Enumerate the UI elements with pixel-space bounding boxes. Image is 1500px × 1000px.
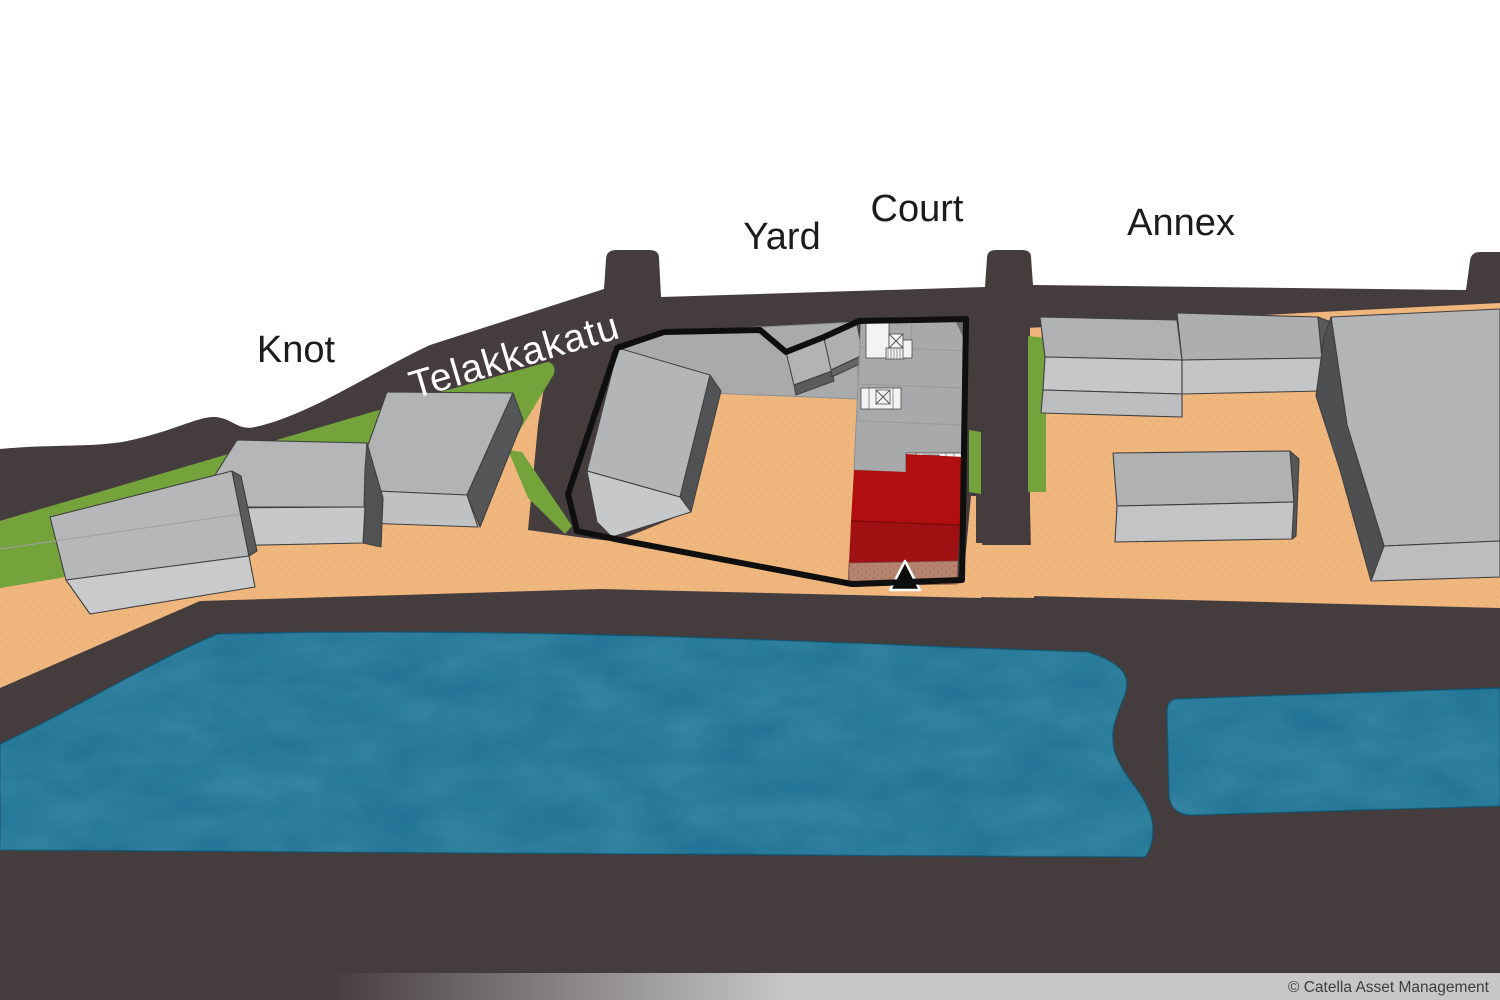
alley-road xyxy=(976,324,1030,543)
building-lower-tier xyxy=(1041,390,1182,417)
stairwell-symbol-mid xyxy=(861,388,901,409)
annex-building-2 xyxy=(1177,313,1331,394)
site-map-canvas: Knot Telakkakatu Yard Court Annex © Cate… xyxy=(0,0,1500,1000)
building-wall-front xyxy=(1371,541,1500,581)
copyright-text: © Catella Asset Management xyxy=(1288,979,1490,996)
footer: © Catella Asset Management xyxy=(330,973,1500,1000)
alley-south-ground xyxy=(978,545,1036,598)
building-roof xyxy=(1177,313,1322,360)
water-basin-east-texture xyxy=(1167,688,1500,815)
building-wall-front xyxy=(1115,502,1294,542)
building-roof xyxy=(1113,451,1294,506)
label-knot: Knot xyxy=(257,329,336,371)
site-map-illustration: Knot Telakkakatu Yard Court Annex © Cate… xyxy=(0,0,1500,1000)
highlighted-section-wall xyxy=(849,521,960,563)
annex-building-1 xyxy=(1040,317,1182,417)
court-building xyxy=(848,319,968,590)
annex-building-4 xyxy=(1113,451,1299,542)
label-yard: Yard xyxy=(743,216,820,258)
water-basin-west-texture xyxy=(0,632,1153,857)
building-roof xyxy=(1040,317,1182,360)
alley-green-left xyxy=(969,430,981,494)
label-annex: Annex xyxy=(1127,202,1235,244)
alley-green-right xyxy=(1028,336,1046,492)
label-court: Court xyxy=(871,188,964,230)
building-wall-front xyxy=(1043,357,1182,394)
building-wall-front xyxy=(1182,358,1322,394)
